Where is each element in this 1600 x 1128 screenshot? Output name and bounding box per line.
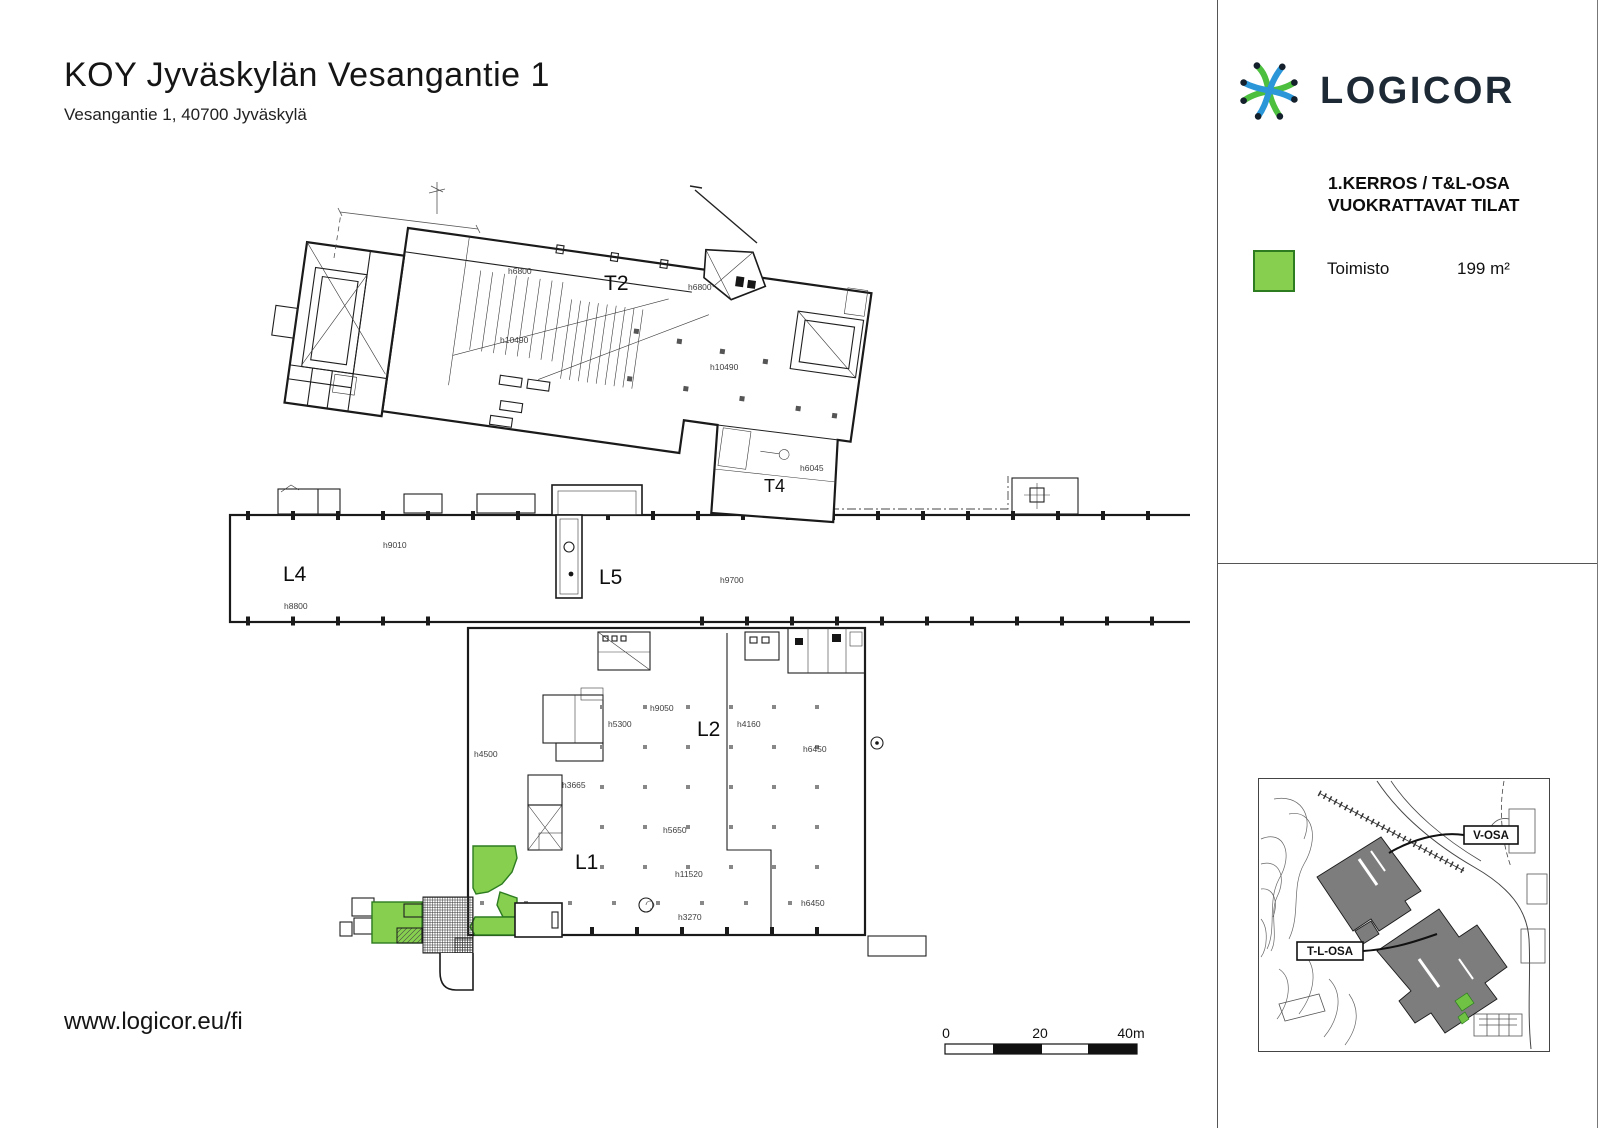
- sheet-heading: 1.KERROS / T&L-OSA VUOKRATTAVAT TILAT: [1328, 172, 1520, 216]
- height-label-h6045: h6045: [800, 463, 824, 473]
- sidebar: LOGICOR 1.KERROS / T&L-OSA VUOKRATTAVAT …: [1217, 0, 1598, 1128]
- floor-plan: T2T4L4L5L2L1h6800h6800h10490h10490h6045h…: [0, 0, 1190, 1128]
- hall-L1-L2: [340, 628, 926, 990]
- height-label-h10490: h10490: [500, 335, 529, 345]
- hall-band-L4-L5: [230, 472, 1190, 635]
- height-label-h8800: h8800: [284, 601, 308, 611]
- height-label-h9050: h9050: [650, 703, 674, 713]
- height-label-h9010: h9010: [383, 540, 407, 550]
- scale-bar: [945, 1044, 1137, 1054]
- legend-area-value: 199 m²: [1457, 259, 1510, 279]
- height-label-h6800: h6800: [508, 266, 532, 276]
- zone-label-L4: L4: [283, 563, 307, 586]
- zone-label-L5: L5: [599, 566, 622, 589]
- legend-color-swatch: [1253, 250, 1295, 292]
- website-link[interactable]: www.logicor.eu/fi: [64, 1008, 243, 1036]
- svg-text:V-OSA: V-OSA: [1473, 830, 1509, 842]
- height-label-h5300: h5300: [608, 719, 632, 729]
- logicor-logo: LOGICOR: [1240, 62, 1515, 120]
- height-label-h6800: h6800: [688, 282, 712, 292]
- sidebar-map-panel: V-OSA T-L-OSA: [1218, 564, 1597, 1128]
- site-map-drawing: V-OSA T-L-OSA: [1259, 779, 1549, 1051]
- height-label-h9700: h9700: [720, 575, 744, 585]
- height-label-h5650: h5650: [663, 825, 687, 835]
- site-map: V-OSA T-L-OSA: [1258, 778, 1550, 1052]
- scale-label-0: 0: [942, 1025, 950, 1041]
- floor-plan-drawing: T2T4L4L5L2L1h6800h6800h10490h10490h6045h…: [0, 0, 1190, 1128]
- site-map-label-v-osa: V-OSA: [1464, 826, 1518, 844]
- height-label-h6450: h6450: [801, 898, 825, 908]
- height-label-h3665: h3665: [562, 780, 586, 790]
- zone-label-T2: T2: [604, 272, 629, 295]
- scale-bar-labels: 02040m: [942, 1025, 1145, 1041]
- legend-item-toimisto: Toimisto 199 m²: [1253, 250, 1583, 294]
- zone-label-T4: T4: [764, 476, 785, 496]
- zone-label-L2: L2: [697, 718, 720, 741]
- legend-label: Toimisto: [1327, 259, 1389, 279]
- height-label-h4500: h4500: [474, 749, 498, 759]
- height-label-h6450: h6450: [803, 744, 827, 754]
- brand-name: LOGICOR: [1320, 70, 1515, 113]
- property-buildings: [1317, 837, 1507, 1033]
- height-label-h11520: h11520: [675, 869, 703, 879]
- site-map-label-t-l-osa: T-L-OSA: [1297, 942, 1363, 960]
- sheet-heading-line2: VUOKRATTAVAT TILAT: [1328, 194, 1520, 216]
- sidebar-info-panel: LOGICOR 1.KERROS / T&L-OSA VUOKRATTAVAT …: [1218, 0, 1597, 564]
- plan-sheet: KOY Jyväskylän Vesangantie 1 Vesangantie…: [0, 0, 1600, 1128]
- contour-lines: [1261, 798, 1356, 1045]
- height-label-h4160: h4160: [737, 719, 761, 729]
- zone-label-L1: L1: [575, 851, 598, 874]
- height-label-h3270: h3270: [678, 912, 702, 922]
- height-label-h10490: h10490: [710, 362, 739, 372]
- svg-text:T-L-OSA: T-L-OSA: [1307, 946, 1353, 958]
- scale-label-40m: 40m: [1117, 1025, 1144, 1041]
- scale-label-20: 20: [1032, 1025, 1048, 1041]
- sheet-heading-line1: 1.KERROS / T&L-OSA: [1328, 172, 1520, 194]
- logicor-logo-icon: [1240, 62, 1298, 120]
